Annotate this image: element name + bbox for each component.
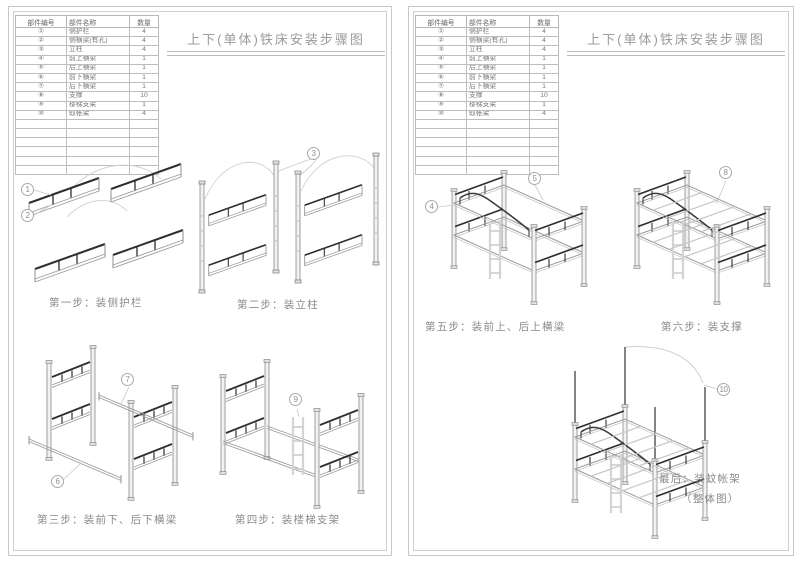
parts-cell-qty: 1 [130,101,159,110]
step3-figure: 7 6 [23,337,208,507]
callout-3: 3 [307,147,320,160]
parts-row-empty [416,129,559,138]
parts-row: ④前上横梁1 [416,55,559,64]
parts-row: ⑤后上横梁1 [16,64,159,73]
final-caption-line2: （整体图） [681,491,740,506]
parts-cell-no: ② [16,37,67,46]
step4-figure: 9 [205,337,391,513]
parts-row: ⑨楼梯支架1 [416,101,559,110]
page-title: 上下(单体)铁床安装步骤图 [567,29,785,56]
step4-drawing [205,337,391,513]
parts-row: ⑦后下横梁1 [416,83,559,92]
parts-cell-qty: 1 [530,83,559,92]
parts-cell-qty: 4 [130,37,159,46]
parts-cell-qty: 1 [130,64,159,73]
parts-row-empty [416,119,559,128]
sheet-2: 部件编号 部件名称 数量 ①侧护栏4②侧横梁(有孔)4③立柱4④前上横梁1⑤后上… [408,6,794,556]
parts-cell-name: 前上横梁 [67,55,130,64]
callout-2: 2 [21,209,34,222]
parts-header-no: 部件编号 [16,16,67,28]
parts-cell-qty: 4 [130,46,159,55]
parts-cell-name: 立柱 [67,46,130,55]
parts-cell-no: ⑤ [416,64,467,73]
parts-cell-empty [67,119,130,128]
callout-6: 6 [51,475,64,488]
step6-drawing [607,145,799,313]
parts-cell-no: ⑧ [16,92,67,101]
title-underline [567,51,785,56]
parts-cell-no: ⑤ [16,64,67,73]
parts-cell-no: ⑩ [16,110,67,119]
parts-cell-name: 后下横梁 [467,83,530,92]
callout-4: 4 [425,200,438,213]
parts-cell-name: 楼梯支架 [67,101,130,110]
parts-cell-qty: 1 [530,101,559,110]
parts-cell-empty [467,129,530,138]
parts-row: ①侧护栏4 [416,28,559,37]
parts-cell-name: 前上横梁 [467,55,530,64]
parts-cell-empty [530,129,559,138]
parts-cell-qty: 4 [530,37,559,46]
parts-cell-name: 侧横梁(有孔) [67,37,130,46]
parts-cell-no: ⑦ [16,83,67,92]
parts-cell-name: 前下横梁 [467,73,530,82]
page-title-text: 上下(单体)铁床安装步骤图 [587,32,765,47]
step5-caption: 第五步：装前上、后上横梁 [425,319,565,334]
final-figure: 10 [527,331,767,549]
parts-row: ④前上横梁1 [16,55,159,64]
parts-row: ⑥前下横梁1 [416,73,559,82]
parts-cell-name: 楼梯支架 [467,101,530,110]
parts-row: ⑩蚊帐架4 [416,110,559,119]
parts-cell-name: 侧护栏 [467,28,530,37]
parts-cell-empty [467,119,530,128]
parts-cell-qty: 4 [530,28,559,37]
parts-cell-no: ④ [416,55,467,64]
parts-cell-qty: 1 [130,73,159,82]
step2-drawing [187,145,393,297]
parts-header-row: 部件编号 部件名称 数量 [416,16,559,28]
parts-cell-empty [67,138,130,147]
parts-cell-no: ⑩ [416,110,467,119]
parts-cell-no: ② [416,37,467,46]
parts-header-row: 部件编号 部件名称 数量 [16,16,159,28]
callout-8: 8 [719,166,732,179]
parts-header-name: 部件名称 [67,16,130,28]
parts-row-empty [16,119,159,128]
parts-cell-name: 支撑 [467,92,530,101]
parts-header-no: 部件编号 [416,16,467,28]
parts-cell-name: 侧护栏 [67,28,130,37]
parts-cell-no: ⑨ [416,101,467,110]
parts-table: 部件编号 部件名称 数量 ①侧护栏4②侧横梁(有孔)4③立柱4④前上横梁1⑤后上… [15,15,159,175]
parts-cell-qty: 1 [130,83,159,92]
parts-cell-qty: 4 [530,46,559,55]
step1-drawing [21,155,189,291]
parts-cell-no: ⑦ [416,83,467,92]
step4-caption: 第四步：装楼梯支架 [235,512,340,527]
parts-row: ③立柱4 [16,46,159,55]
parts-cell-empty [530,119,559,128]
callout-10: 10 [717,383,730,396]
step6-caption: 第六步：装支撑 [661,319,743,334]
parts-cell-no: ④ [16,55,67,64]
parts-cell-empty [130,119,159,128]
parts-cell-no: ③ [16,46,67,55]
step3-caption: 第三步：装前下、后下横梁 [37,512,177,527]
parts-cell-name: 前下横梁 [67,73,130,82]
parts-cell-qty: 10 [530,92,559,101]
parts-row-empty [16,129,159,138]
parts-row: ③立柱4 [416,46,559,55]
parts-cell-name: 后下横梁 [67,83,130,92]
callout-7: 7 [121,373,134,386]
parts-cell-qty: 1 [530,55,559,64]
parts-row: ⑥前下横梁1 [16,73,159,82]
step5-drawing [423,145,619,313]
step6-figure: 8 [607,145,799,313]
parts-row: ⑩蚊帐架4 [16,110,159,119]
parts-cell-no: ⑥ [16,73,67,82]
parts-cell-empty [16,129,67,138]
callout-5: 5 [528,172,541,185]
parts-row: ⑨楼梯支架1 [16,101,159,110]
parts-cell-qty: 1 [530,64,559,73]
parts-cell-empty [16,119,67,128]
parts-cell-name: 侧横梁(有孔) [467,37,530,46]
callout-1: 1 [21,183,34,196]
page-title: 上下(单体)铁床安装步骤图 [167,29,385,56]
parts-row: ②侧横梁(有孔)4 [416,37,559,46]
parts-row: ②侧横梁(有孔)4 [16,37,159,46]
parts-header-qty: 数量 [130,16,159,28]
sheet-1: 部件编号 部件名称 数量 ①侧护栏4②侧横梁(有孔)4③立柱4④前上横梁1⑤后上… [8,6,392,556]
parts-cell-empty [416,119,467,128]
parts-cell-no: ⑨ [16,101,67,110]
parts-row: ⑧支撑10 [416,92,559,101]
step1-caption: 第一步：装侧护栏 [49,295,143,310]
final-drawing [527,331,767,549]
parts-cell-qty: 1 [130,55,159,64]
callout-9: 9 [289,393,302,406]
parts-cell-no: ③ [416,46,467,55]
parts-cell-qty: 10 [130,92,159,101]
parts-cell-qty: 1 [530,73,559,82]
parts-cell-name: 后上横梁 [467,64,530,73]
parts-row-empty [16,138,159,147]
parts-cell-empty [416,129,467,138]
parts-row: ⑦后下横梁1 [16,83,159,92]
parts-cell-empty [16,138,67,147]
page-title-text: 上下(单体)铁床安装步骤图 [187,32,365,47]
parts-row: ⑧支撑10 [16,92,159,101]
assembly-instruction-sheet: { "doc": { "title": "上下(单体)铁床安装步骤图" }, "… [0,0,800,565]
parts-cell-empty [130,138,159,147]
parts-cell-qty: 4 [130,110,159,119]
parts-cell-name: 支撑 [67,92,130,101]
parts-row: ①侧护栏4 [16,28,159,37]
parts-cell-empty [67,129,130,138]
step2-figure: 3 [187,145,393,297]
parts-cell-name: 后上横梁 [67,64,130,73]
parts-cell-name: 立柱 [467,46,530,55]
step2-caption: 第二步：装立柱 [237,297,319,312]
parts-cell-no: ⑧ [416,92,467,101]
final-caption: 最后：装蚊帐架 [659,471,741,486]
parts-row: ⑤后上横梁1 [416,64,559,73]
parts-cell-no: ⑥ [416,73,467,82]
parts-header-name: 部件名称 [467,16,530,28]
parts-cell-name: 蚊帐架 [467,110,530,119]
step5-figure: 4 5 [423,145,619,313]
step1-figure: 1 2 [21,155,189,291]
parts-cell-empty [130,129,159,138]
parts-cell-name: 蚊帐架 [67,110,130,119]
parts-cell-no: ① [16,28,67,37]
parts-cell-qty: 4 [130,28,159,37]
parts-cell-qty: 4 [530,110,559,119]
title-underline [167,51,385,56]
parts-header-qty: 数量 [530,16,559,28]
parts-cell-no: ① [416,28,467,37]
